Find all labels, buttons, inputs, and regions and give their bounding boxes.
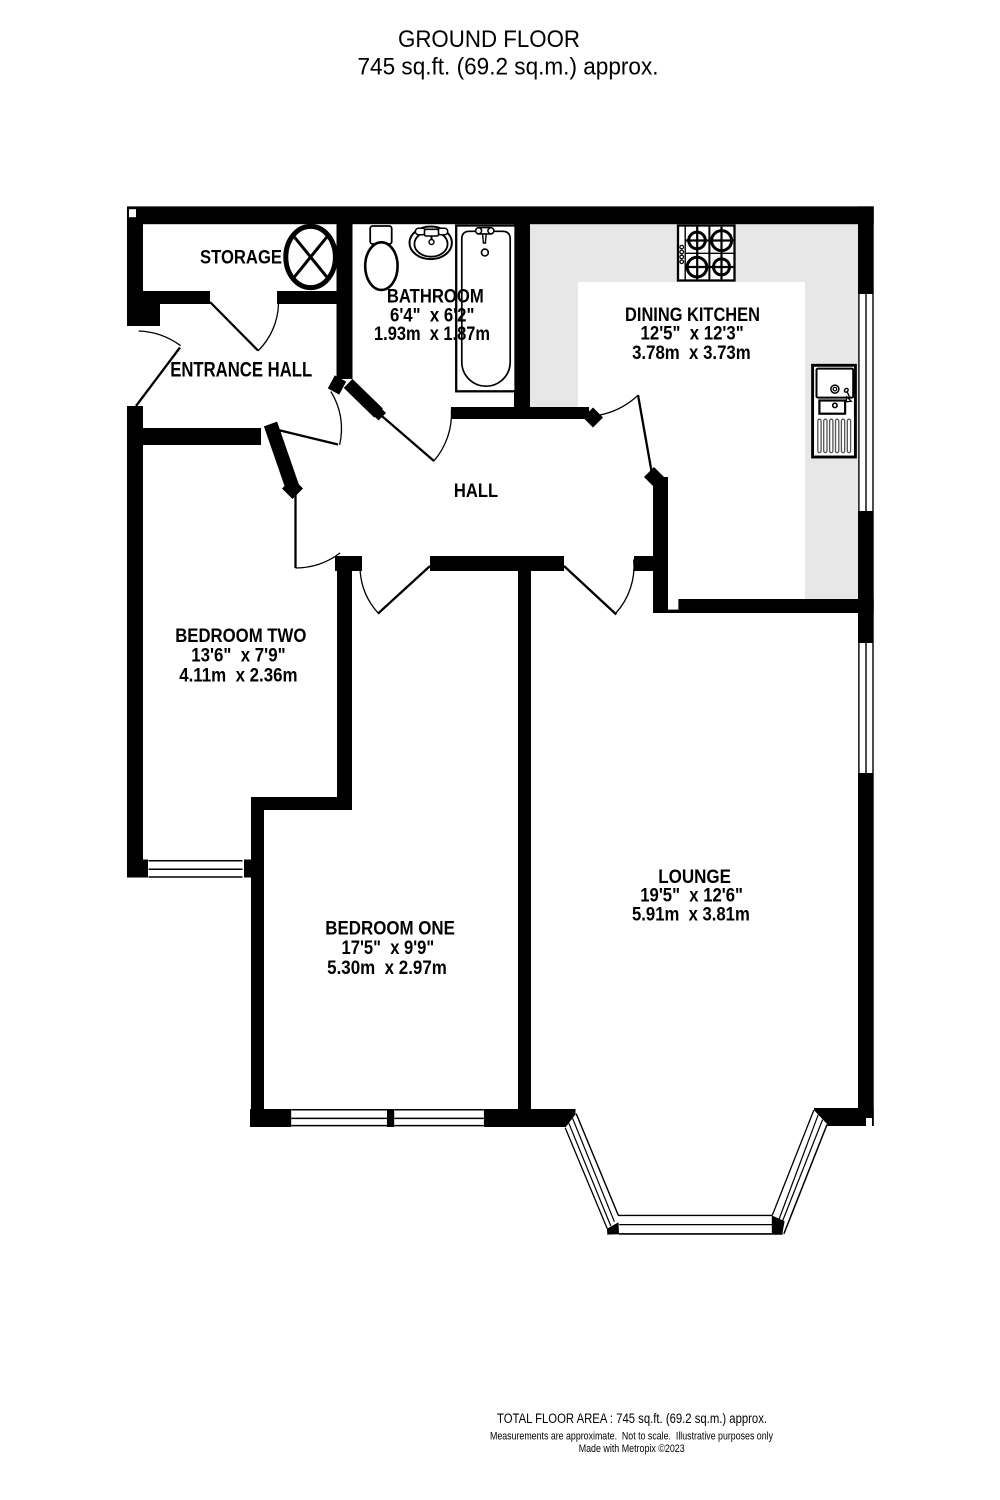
svg-text:TOTAL FLOOR AREA : 745 sq.ft.: TOTAL FLOOR AREA : 745 sq.ft. (69.2 sq.m… <box>497 1411 767 1426</box>
svg-text:5.91m x 3.81m: 5.91m x 3.81m <box>632 904 750 925</box>
svg-text:3.78m x 3.73m: 3.78m x 3.73m <box>632 343 751 364</box>
svg-text:BEDROOM TWO: BEDROOM TWO <box>175 626 306 647</box>
svg-text:1.93m x 1.87m: 1.93m x 1.87m <box>374 324 490 345</box>
svg-text:GROUND FLOOR: GROUND FLOOR <box>398 26 580 53</box>
svg-text:5.30m x 2.97m: 5.30m x 2.97m <box>327 958 447 979</box>
svg-text:Made with Metropix ©2023: Made with Metropix ©2023 <box>579 1443 685 1455</box>
svg-text:HALL: HALL <box>454 481 499 502</box>
svg-text:Measurements are approximate.: Measurements are approximate. Not to sca… <box>490 1431 773 1443</box>
svg-text:4.11m x 2.36m: 4.11m x 2.36m <box>179 665 297 686</box>
svg-text:745 sq.ft. (69.2 sq.m.) approx: 745 sq.ft. (69.2 sq.m.) approx. <box>358 53 659 80</box>
svg-text:13'6" x 7'9": 13'6" x 7'9" <box>191 645 285 666</box>
svg-text:ENTRANCE HALL: ENTRANCE HALL <box>170 358 312 381</box>
svg-text:12'5" x 12'3": 12'5" x 12'3" <box>641 324 744 345</box>
svg-text:STORAGE: STORAGE <box>200 248 282 269</box>
svg-text:BEDROOM ONE: BEDROOM ONE <box>325 918 455 939</box>
svg-text:17'5" x 9'9": 17'5" x 9'9" <box>342 938 435 959</box>
